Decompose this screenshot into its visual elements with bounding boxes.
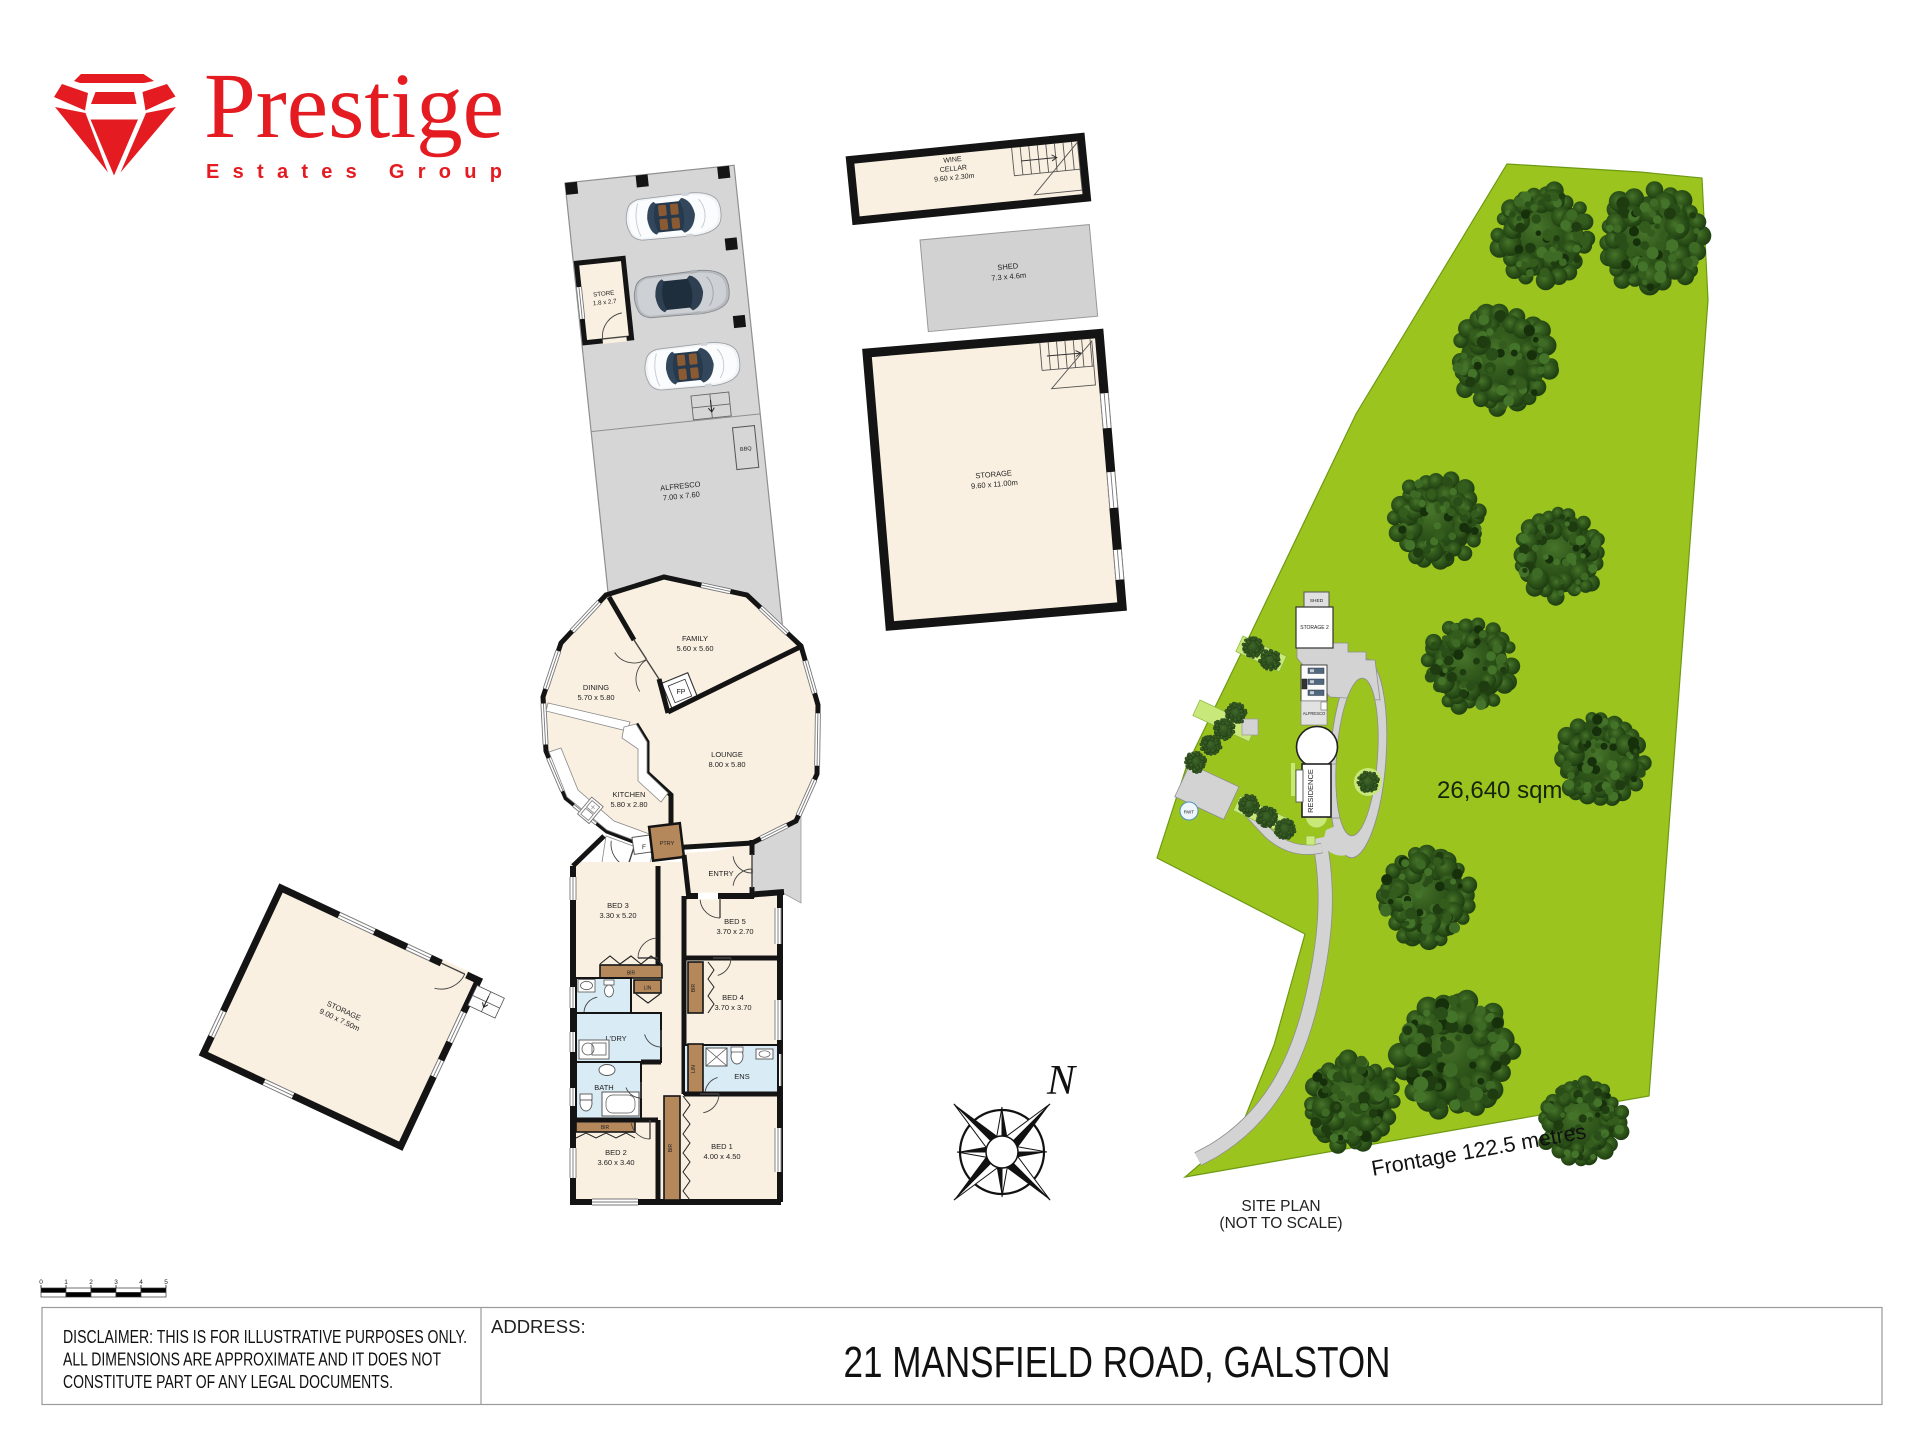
svg-text:STORAGE 2: STORAGE 2 <box>1300 625 1329 631</box>
svg-text:BBQ: BBQ <box>740 446 753 453</box>
svg-text:KITCHEN5.80 x 2.80: KITCHEN5.80 x 2.80 <box>610 790 647 809</box>
svg-text:21 MANSFIELD ROAD, GALSTON: 21 MANSFIELD ROAD, GALSTON <box>844 1338 1391 1387</box>
svg-text:LIN: LIN <box>644 986 652 992</box>
svg-text:STORAGE9.60 x 11.00m: STORAGE9.60 x 11.00m <box>970 468 1018 491</box>
svg-text:STORE1.8 x 2.7: STORE1.8 x 2.7 <box>592 289 618 307</box>
svg-text:0: 0 <box>39 1279 43 1286</box>
svg-text:PTRY: PTRY <box>660 841 675 847</box>
svg-text:BIR: BIR <box>668 1143 674 1152</box>
svg-text:LIN: LIN <box>691 1065 697 1073</box>
svg-text:BIR: BIR <box>691 983 697 992</box>
svg-text:RESIDENCE: RESIDENCE <box>1306 769 1315 813</box>
svg-text:3: 3 <box>114 1279 118 1286</box>
svg-text:SHED: SHED <box>1310 598 1324 604</box>
svg-text:4: 4 <box>139 1279 143 1286</box>
svg-text:F: F <box>642 844 646 851</box>
svg-text:BIR: BIR <box>601 1125 610 1131</box>
svg-text:1: 1 <box>64 1279 68 1286</box>
svg-text:ALFRESCO: ALFRESCO <box>1303 711 1326 716</box>
svg-text:FAMILY5.60 x 5.60: FAMILY5.60 x 5.60 <box>676 634 713 653</box>
svg-text:DINING5.70 x 5.80: DINING5.70 x 5.80 <box>577 683 614 702</box>
svg-text:RWT: RWT <box>1184 810 1195 815</box>
svg-text:5: 5 <box>164 1279 168 1286</box>
svg-text:BATH: BATH <box>594 1083 613 1092</box>
svg-text:2: 2 <box>89 1279 93 1286</box>
svg-text:BIR: BIR <box>627 971 636 977</box>
svg-text:Prestige: Prestige <box>204 55 504 158</box>
svg-text:N: N <box>1046 1058 1077 1104</box>
svg-text:ENS: ENS <box>734 1072 749 1081</box>
svg-text:ADDRESS:: ADDRESS: <box>491 1316 586 1337</box>
svg-text:FP: FP <box>677 689 686 696</box>
svg-text:26,640 sqm: 26,640 sqm <box>1437 777 1562 804</box>
svg-text:ENTRY: ENTRY <box>708 869 733 878</box>
svg-text:LOUNGE8.00 x 5.80: LOUNGE8.00 x 5.80 <box>708 750 745 769</box>
